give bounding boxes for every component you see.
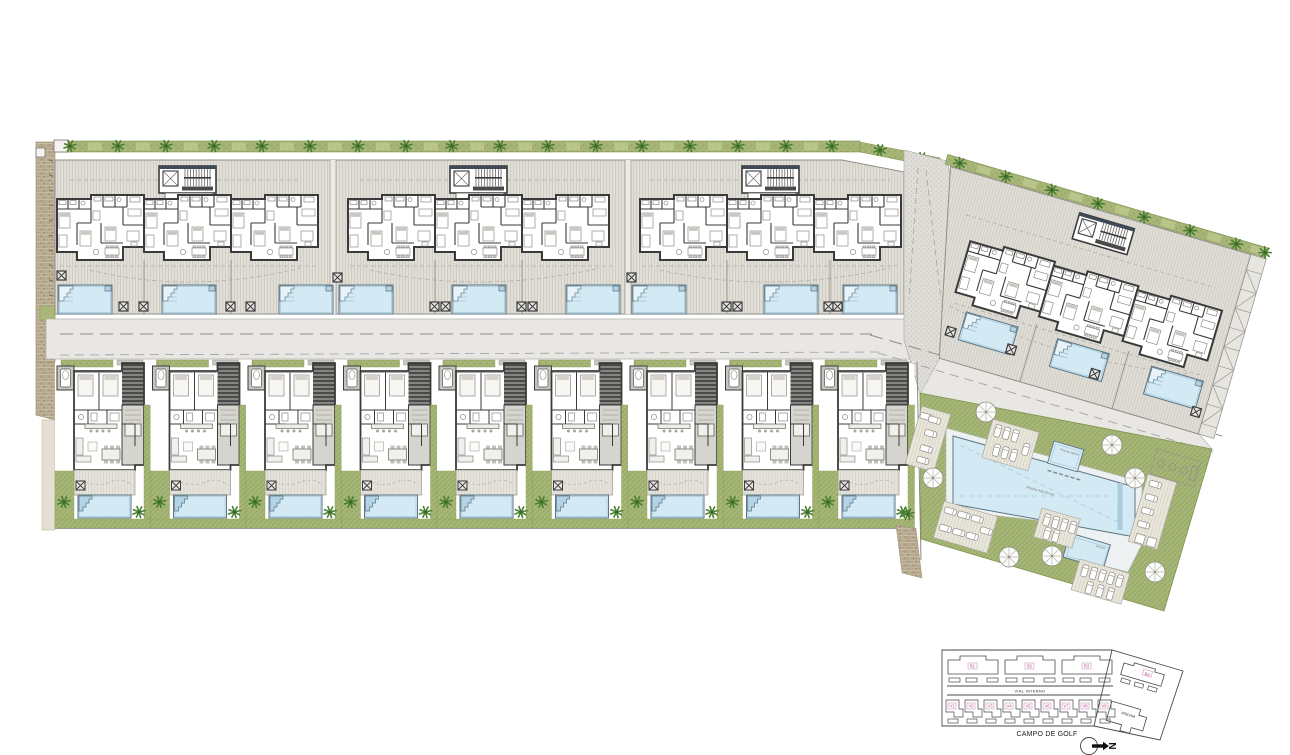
svg-text:V9: V9 [1101, 704, 1107, 709]
svg-text:V4: V4 [1006, 704, 1012, 709]
svg-text:B3: B3 [1084, 664, 1090, 669]
svg-text:V1: V1 [949, 704, 955, 709]
svg-text:B2: B2 [1027, 664, 1033, 669]
svg-text:V5: V5 [1025, 704, 1031, 709]
svg-text:V8: V8 [1082, 704, 1088, 709]
svg-text:N: N [1106, 742, 1117, 749]
svg-text:V6: V6 [1044, 704, 1050, 709]
svg-text:B1: B1 [970, 664, 976, 669]
svg-text:V3: V3 [987, 704, 993, 709]
svg-text:V7: V7 [1063, 704, 1069, 709]
svg-text:CAMPO DE GOLF: CAMPO DE GOLF [1017, 731, 1078, 738]
svg-text:V2: V2 [968, 704, 974, 709]
svg-text:VIAL INTERNO: VIAL INTERNO [1014, 690, 1045, 694]
